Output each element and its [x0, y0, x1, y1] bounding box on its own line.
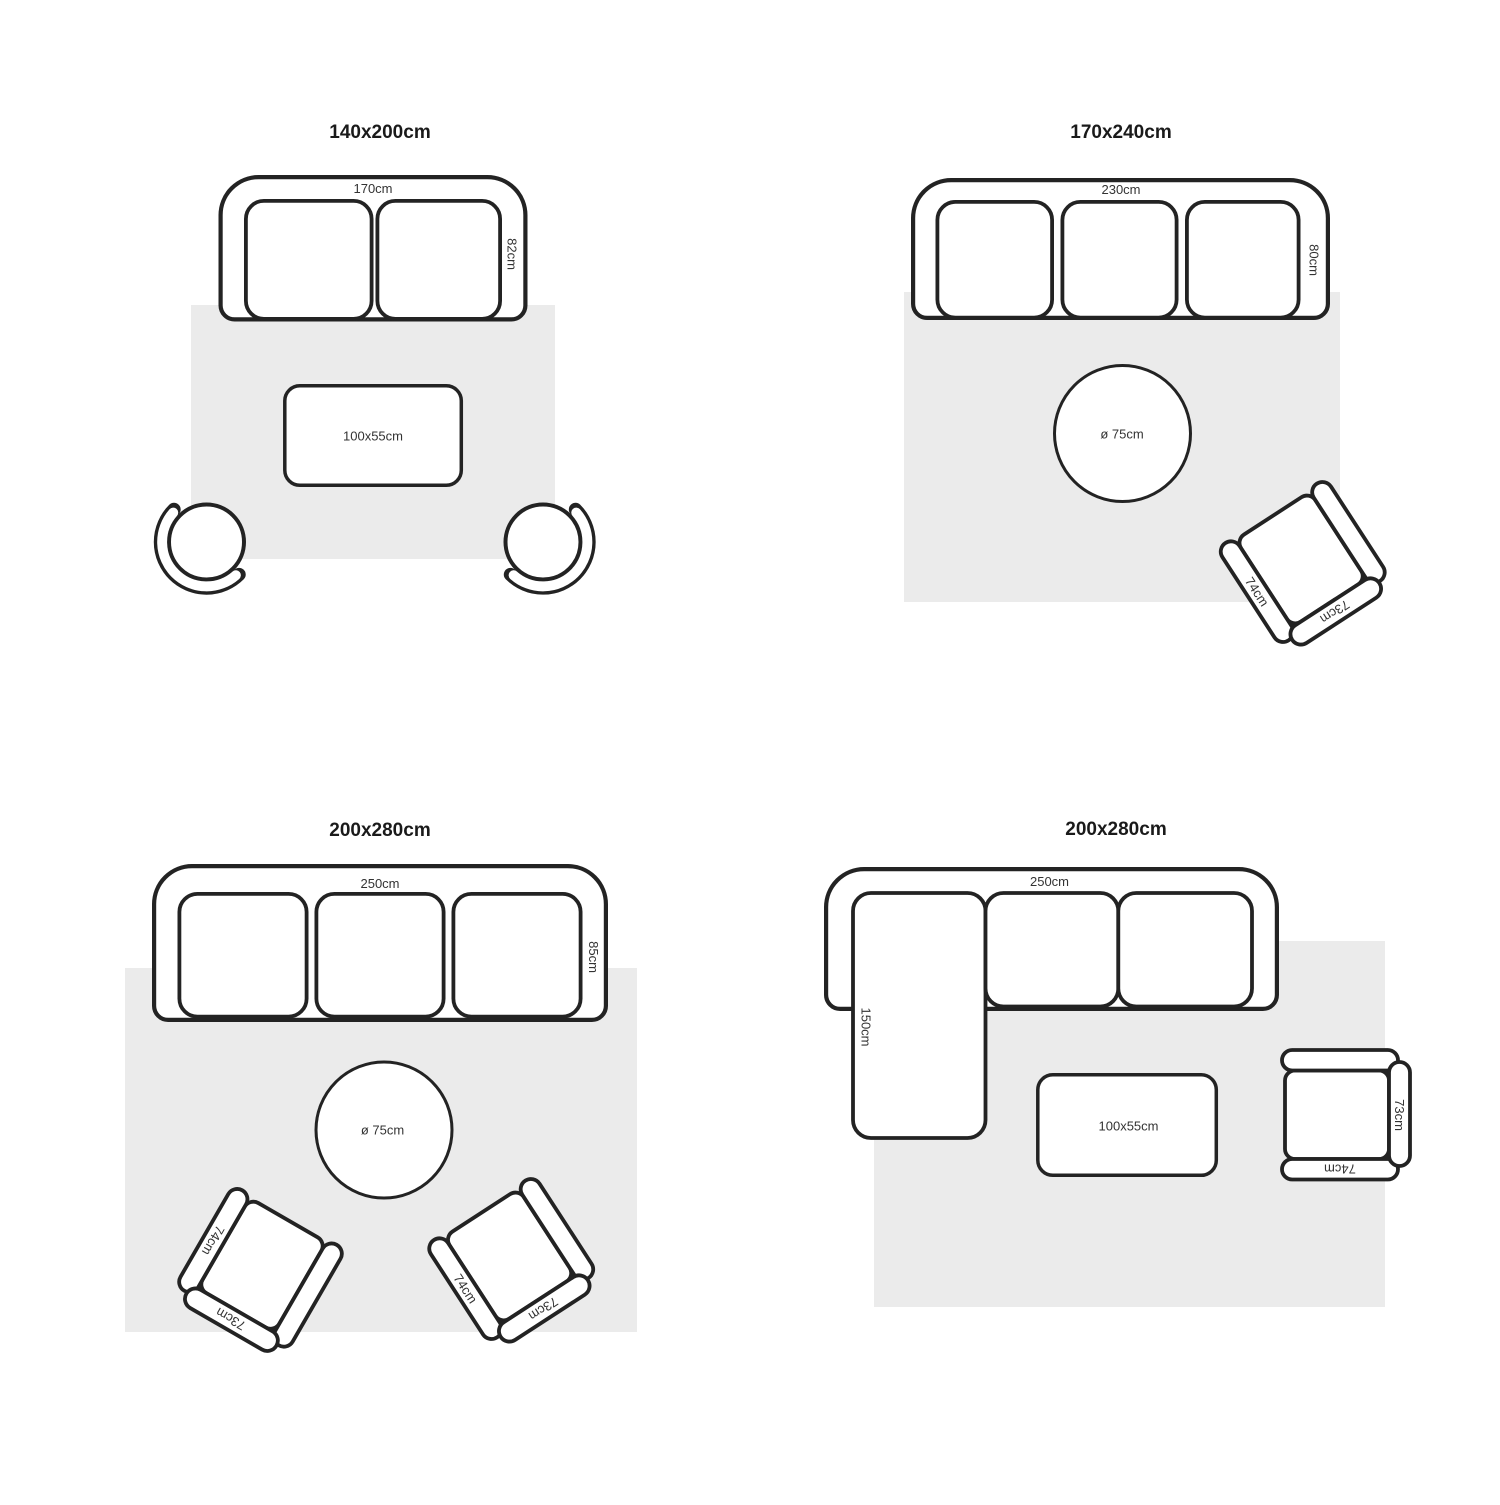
- svg-text:ø 75cm: ø 75cm: [1100, 427, 1143, 442]
- svg-text:80cm: 80cm: [1306, 244, 1321, 276]
- svg-text:74cm: 74cm: [1324, 1162, 1356, 1177]
- svg-text:82cm: 82cm: [504, 238, 519, 270]
- svg-text:250cm: 250cm: [360, 876, 399, 891]
- svg-text:100x55cm: 100x55cm: [343, 429, 403, 444]
- svg-text:73cm: 73cm: [1392, 1099, 1407, 1131]
- svg-text:85cm: 85cm: [586, 941, 601, 973]
- svg-text:150cm: 150cm: [858, 1007, 873, 1046]
- svg-text:250cm: 250cm: [1030, 874, 1069, 889]
- svg-text:170x240cm: 170x240cm: [1070, 122, 1171, 143]
- svg-text:ø 75cm: ø 75cm: [361, 1123, 404, 1138]
- svg-text:170cm: 170cm: [353, 181, 392, 196]
- svg-text:200x280cm: 200x280cm: [329, 820, 430, 841]
- svg-text:230cm: 230cm: [1101, 182, 1140, 197]
- svg-text:100x55cm: 100x55cm: [1099, 1119, 1159, 1134]
- svg-text:140x200cm: 140x200cm: [329, 122, 430, 143]
- svg-text:200x280cm: 200x280cm: [1065, 819, 1166, 840]
